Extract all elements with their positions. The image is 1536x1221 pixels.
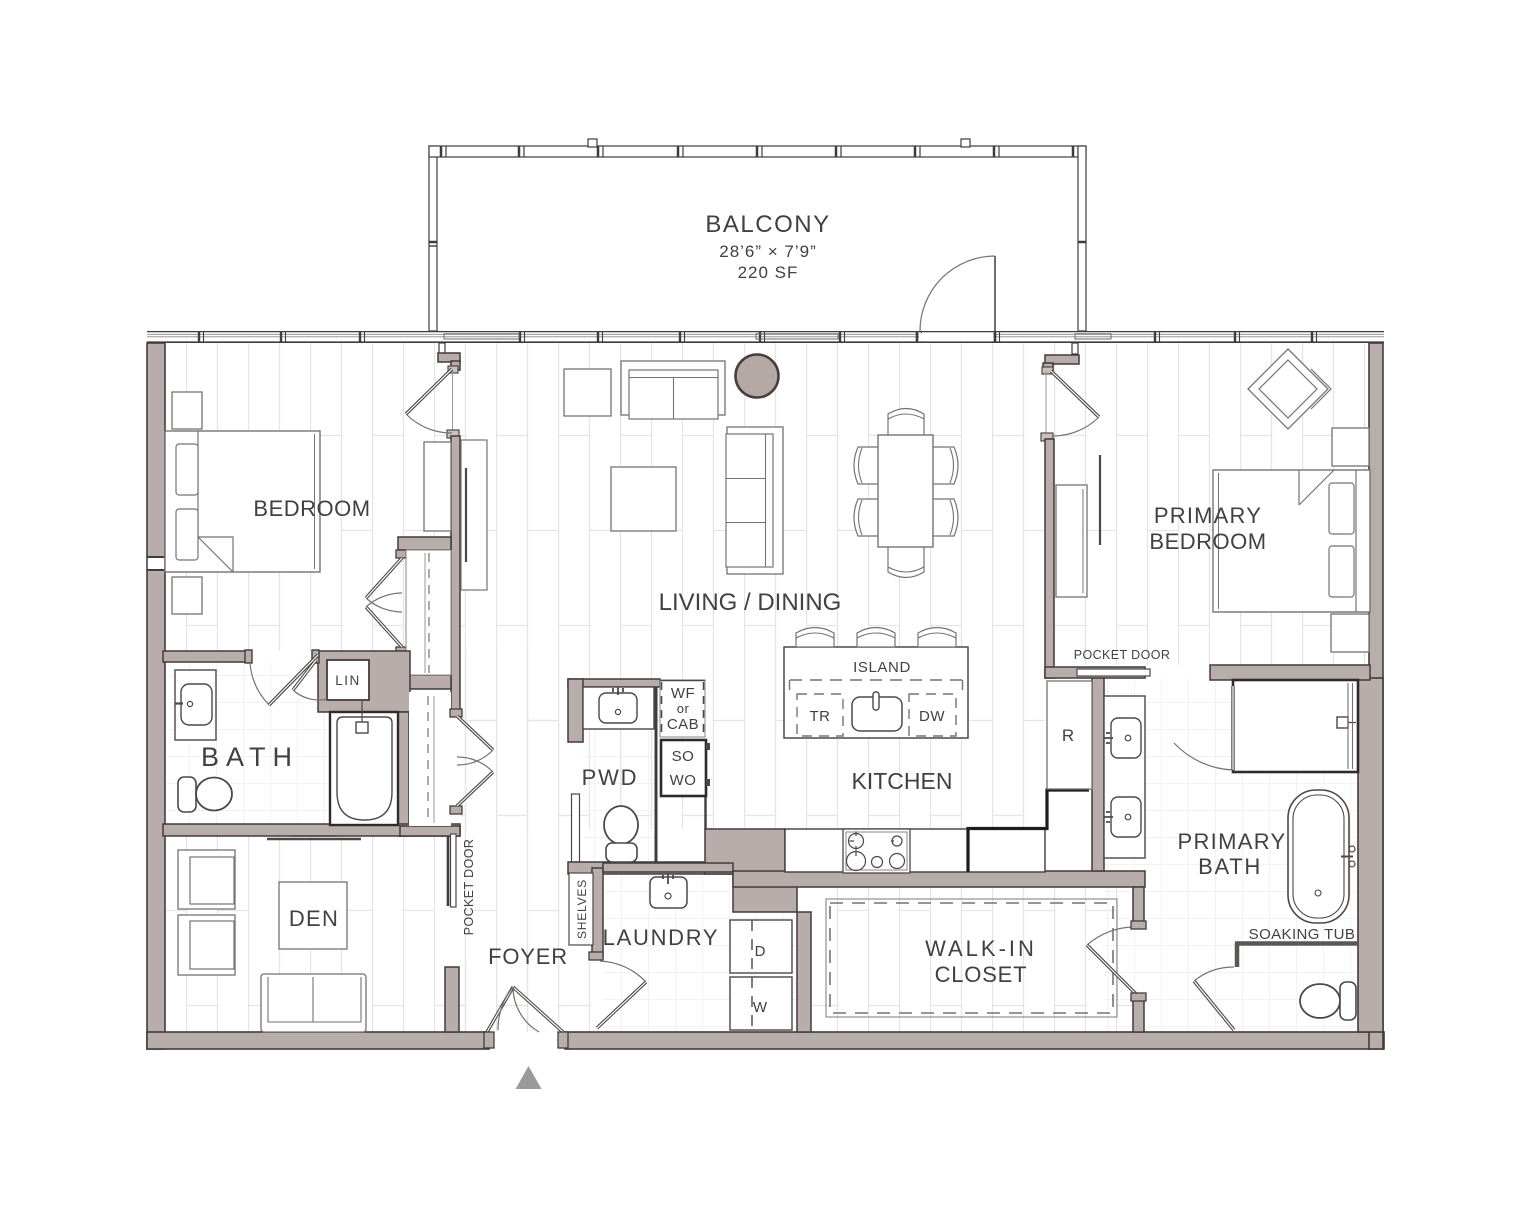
svg-text:W: W	[753, 999, 768, 1016]
svg-text:TR: TR	[810, 708, 831, 725]
svg-text:or: or	[677, 701, 690, 716]
svg-text:CAB: CAB	[667, 716, 699, 733]
svg-text:SOAKING TUB: SOAKING TUB	[1249, 926, 1356, 943]
svg-text:BEDROOM: BEDROOM	[1149, 529, 1266, 554]
svg-text:ISLAND: ISLAND	[853, 659, 911, 676]
svg-text:WALK-IN: WALK-IN	[925, 936, 1037, 961]
svg-text:R: R	[1062, 726, 1074, 745]
svg-text:D: D	[755, 943, 766, 960]
svg-text:POCKET DOOR: POCKET DOOR	[462, 839, 476, 936]
svg-text:CLOSET: CLOSET	[935, 962, 1028, 987]
svg-text:BALCONY: BALCONY	[705, 211, 830, 238]
svg-text:LIN: LIN	[335, 673, 361, 688]
svg-text:DW: DW	[919, 708, 945, 725]
svg-text:SO: SO	[672, 748, 695, 765]
svg-text:PWD: PWD	[582, 765, 639, 790]
svg-text:POCKET DOOR: POCKET DOOR	[1074, 648, 1171, 662]
svg-text:SHELVES: SHELVES	[575, 879, 589, 939]
svg-text:PRIMARY: PRIMARY	[1178, 829, 1287, 854]
svg-text:28’6” × 7’9”: 28’6” × 7’9”	[719, 242, 817, 261]
svg-text:220 SF: 220 SF	[738, 263, 799, 282]
svg-text:BEDROOM: BEDROOM	[253, 496, 370, 521]
svg-text:PRIMARY: PRIMARY	[1154, 503, 1262, 528]
svg-text:FOYER: FOYER	[488, 944, 568, 969]
svg-text:KITCHEN: KITCHEN	[852, 768, 953, 794]
svg-text:LAUNDRY: LAUNDRY	[603, 925, 720, 950]
svg-text:BATH: BATH	[201, 742, 299, 772]
svg-text:DEN: DEN	[289, 906, 339, 931]
svg-text:BATH: BATH	[1198, 854, 1262, 879]
svg-text:LIVING / DINING: LIVING / DINING	[659, 589, 842, 616]
svg-text:WF: WF	[671, 685, 695, 702]
svg-text:WO: WO	[670, 772, 697, 789]
